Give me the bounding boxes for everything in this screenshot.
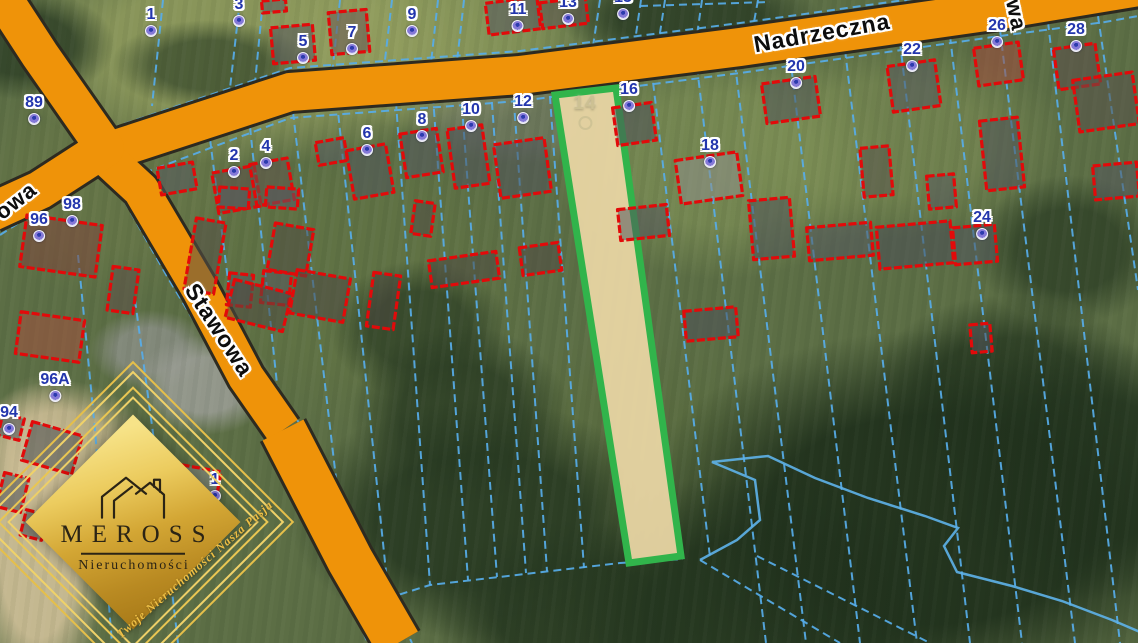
- house-number-text: 89: [25, 95, 43, 111]
- house-number-text: 5: [299, 34, 308, 50]
- address-point-icon: [976, 228, 988, 240]
- address-point-icon: [346, 43, 358, 55]
- house-number-text: 4: [262, 139, 271, 155]
- highlight-parcel-number: 14: [573, 94, 596, 113]
- house-number-text: 28: [1067, 22, 1085, 38]
- house-number-text: 1: [211, 472, 220, 488]
- address-label: 18: [701, 138, 719, 168]
- address-point-icon: [233, 15, 245, 27]
- address-label: 89: [25, 95, 43, 125]
- house-number-text: 7: [348, 25, 357, 41]
- house-number-text: 9: [408, 7, 417, 23]
- address-point-icon: [260, 157, 272, 169]
- address-label: 20: [787, 59, 805, 89]
- address-label: 96A: [40, 372, 69, 402]
- address-point-icon: [465, 120, 477, 132]
- house-number-text: 8: [418, 112, 427, 128]
- address-label: 11: [510, 2, 527, 32]
- address-point-icon: [228, 166, 240, 178]
- address-point-icon: [66, 215, 78, 227]
- house-number-text: 6: [363, 126, 372, 142]
- house-number-text: 96: [30, 212, 48, 228]
- address-point-icon: [991, 36, 1003, 48]
- house-number-text: 96A: [40, 372, 69, 388]
- address-label: 94: [0, 405, 18, 435]
- address-label: 3: [233, 0, 245, 27]
- house-number-text: 15: [614, 0, 632, 6]
- house-number-text: 10: [462, 102, 480, 118]
- address-point-icon: [209, 490, 221, 502]
- address-label: 2: [228, 148, 240, 178]
- house-number-text: 11: [510, 2, 527, 18]
- address-point-icon: [406, 25, 418, 37]
- house-number-text: 22: [903, 42, 921, 58]
- address-label: 6: [361, 126, 373, 156]
- address-point-icon: [416, 130, 428, 142]
- address-label: 1: [209, 472, 221, 502]
- address-point-icon: [3, 423, 15, 435]
- address-point-icon: [1070, 40, 1082, 52]
- address-label: 13: [559, 0, 577, 25]
- address-point-icon: [297, 52, 309, 64]
- address-point-icon: [623, 100, 635, 112]
- address-label: 28: [1067, 22, 1085, 52]
- address-point-icon: [617, 8, 629, 20]
- house-number-text: 94: [0, 405, 18, 421]
- house-number-text: 3: [235, 0, 244, 13]
- address-point-icon: [562, 13, 574, 25]
- house-number-text: 98: [63, 197, 81, 213]
- address-point-icon: [704, 156, 716, 168]
- house-number-text: 18: [701, 138, 719, 154]
- address-label: 7: [346, 25, 358, 55]
- map-labels: NadrzecznaStawowaowawa135791113158996989…: [0, 0, 1138, 643]
- address-label: 12: [514, 94, 532, 124]
- address-point-icon: [790, 77, 802, 89]
- street-label-nadrzeczna: Nadrzeczna: [752, 8, 892, 59]
- address-label: 15: [614, 0, 632, 20]
- address-label: 98: [63, 197, 81, 227]
- house-number-text: 2: [230, 148, 239, 164]
- house-number-text: 24: [973, 210, 991, 226]
- address-point-icon: [517, 112, 529, 124]
- address-point-icon: [906, 60, 918, 72]
- address-label: 24: [973, 210, 991, 240]
- house-number-text: 12: [514, 94, 532, 110]
- house-number-text: 1: [147, 7, 156, 23]
- address-label: 5: [297, 34, 309, 64]
- listing-map-image: NadrzecznaStawowaowawa135791113158996989…: [0, 0, 1138, 643]
- house-number-text: 16: [620, 82, 638, 98]
- house-number-text: 13: [559, 0, 577, 11]
- address-label: 26: [988, 18, 1006, 48]
- address-label: 96: [30, 212, 48, 242]
- house-number-text: 26: [988, 18, 1006, 34]
- house-number-text: 20: [787, 59, 805, 75]
- address-label: 4: [260, 139, 272, 169]
- address-point-icon: [28, 113, 40, 125]
- address-label: 10: [462, 102, 480, 132]
- address-label: 16: [620, 82, 638, 112]
- address-label: 8: [416, 112, 428, 142]
- address-point-icon: [33, 230, 45, 242]
- highlight-parcel-label: 14: [573, 94, 596, 130]
- street-label-stawowa: Stawowa: [179, 278, 259, 381]
- address-point-icon: [145, 25, 157, 37]
- address-label: 9: [406, 7, 418, 37]
- address-point-icon: [512, 20, 524, 32]
- address-point-icon: [361, 144, 373, 156]
- address-point-icon: [49, 390, 61, 402]
- parcel-point-icon: [578, 116, 592, 130]
- address-label: 1: [145, 7, 157, 37]
- address-label: 22: [903, 42, 921, 72]
